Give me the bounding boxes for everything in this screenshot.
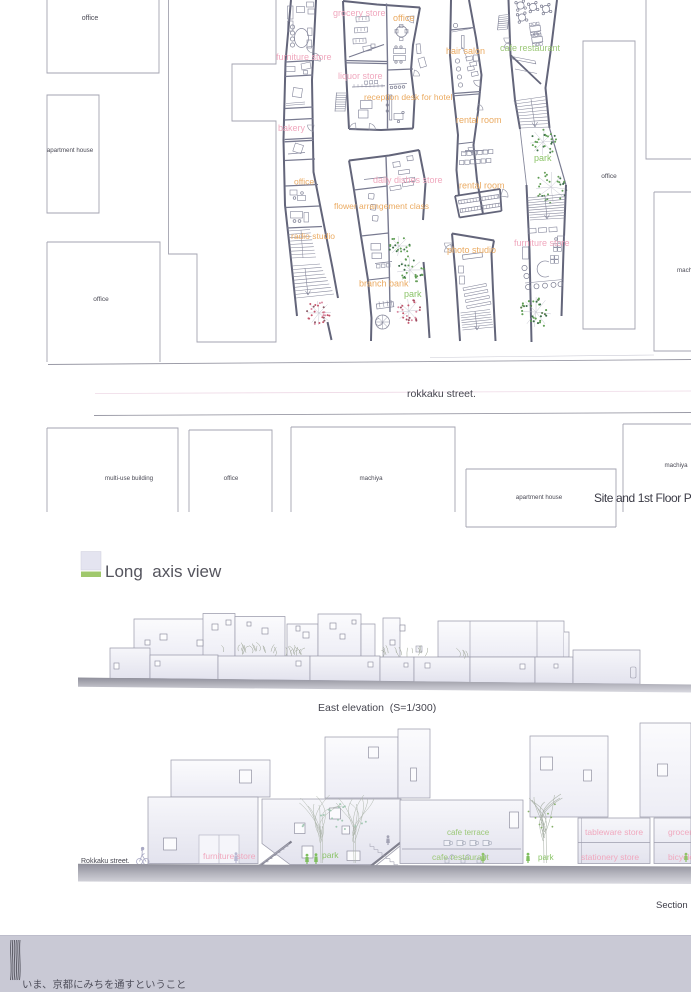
svg-text:office: office <box>294 177 314 187</box>
svg-text:bakery: bakery <box>278 123 306 133</box>
svg-text:rental room: rental room <box>456 115 502 125</box>
svg-text:Long axis view: Long axis view <box>105 562 222 581</box>
svg-text:office: office <box>93 296 109 303</box>
svg-text:Site and 1st Floor Plan: Site and 1st Floor Plan <box>594 491 691 505</box>
svg-text:cafe restaurant: cafe restaurant <box>500 43 561 53</box>
svg-text:stationery store: stationery store <box>581 852 639 862</box>
svg-text:rokkaku street.: rokkaku street. <box>407 388 476 400</box>
svg-text:park: park <box>534 153 552 163</box>
svg-text:grocery store: grocery store <box>333 8 386 18</box>
svg-text:park: park <box>538 853 555 862</box>
svg-text:liquor store: liquor store <box>338 71 383 81</box>
svg-text:office: office <box>82 15 99 22</box>
svg-text:machiya: machiya <box>359 475 383 482</box>
svg-text:East elevation (S=1/300): East elevation (S=1/300) <box>318 702 436 714</box>
svg-text:cafe terrace: cafe terrace <box>447 828 490 837</box>
svg-text:radio studio: radio studio <box>291 231 335 241</box>
svg-text:apartment house: apartment house <box>516 494 563 501</box>
svg-text:park: park <box>404 289 422 299</box>
svg-text:office: office <box>393 13 414 23</box>
svg-text:grocery store: grocery store <box>668 827 691 837</box>
svg-text:flower arrangement class: flower arrangement class <box>334 201 429 211</box>
svg-text:daily dishes store: daily dishes store <box>373 175 443 185</box>
svg-text:いま、京都にみちを通すということ: いま、京都にみちを通すということ <box>22 978 186 991</box>
svg-text:tableware store: tableware store <box>585 827 643 837</box>
svg-text:furniture store: furniture store <box>276 52 332 62</box>
svg-text:park: park <box>322 850 339 860</box>
svg-text:reception desk for hotel: reception desk for hotel <box>364 92 452 102</box>
svg-text:photo studio: photo studio <box>447 245 496 255</box>
svg-text:furniture store: furniture store <box>514 238 570 248</box>
svg-text:Section: Section <box>656 900 688 911</box>
svg-text:cafe restaurant: cafe restaurant <box>432 852 489 862</box>
svg-text:machiya: machiya <box>677 267 691 274</box>
svg-text:furniture store: furniture store <box>203 851 256 861</box>
svg-text:office: office <box>601 173 617 180</box>
svg-text:branch bank: branch bank <box>359 279 409 289</box>
svg-text:rental room: rental room <box>459 181 505 191</box>
svg-text:hair salon: hair salon <box>446 46 485 56</box>
svg-text:apartment house: apartment house <box>47 147 94 154</box>
svg-text:machiya: machiya <box>664 462 688 469</box>
svg-text:office: office <box>224 475 239 482</box>
svg-text:multi-use building: multi-use building <box>105 475 154 482</box>
